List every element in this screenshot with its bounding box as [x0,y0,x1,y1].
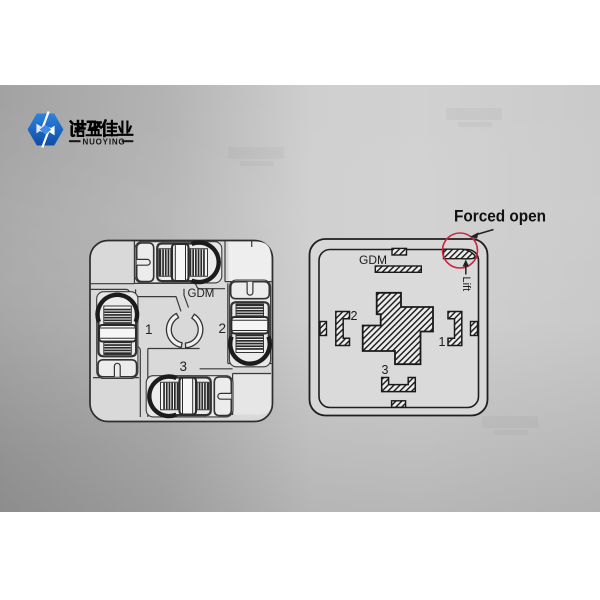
svg-text:NUOYING: NUOYING [83,138,126,147]
svg-text:3: 3 [180,359,188,374]
svg-text:Forced open: Forced open [454,208,546,226]
svg-text:GDM: GDM [188,288,215,300]
svg-text:3: 3 [382,363,389,377]
svg-text:GDM: GDM [359,253,387,267]
svg-text:2: 2 [219,321,227,336]
svg-text:1: 1 [145,322,153,337]
svg-text:1: 1 [439,335,446,349]
svg-text:Lift: Lift [460,277,472,292]
svg-text:2: 2 [351,309,358,323]
